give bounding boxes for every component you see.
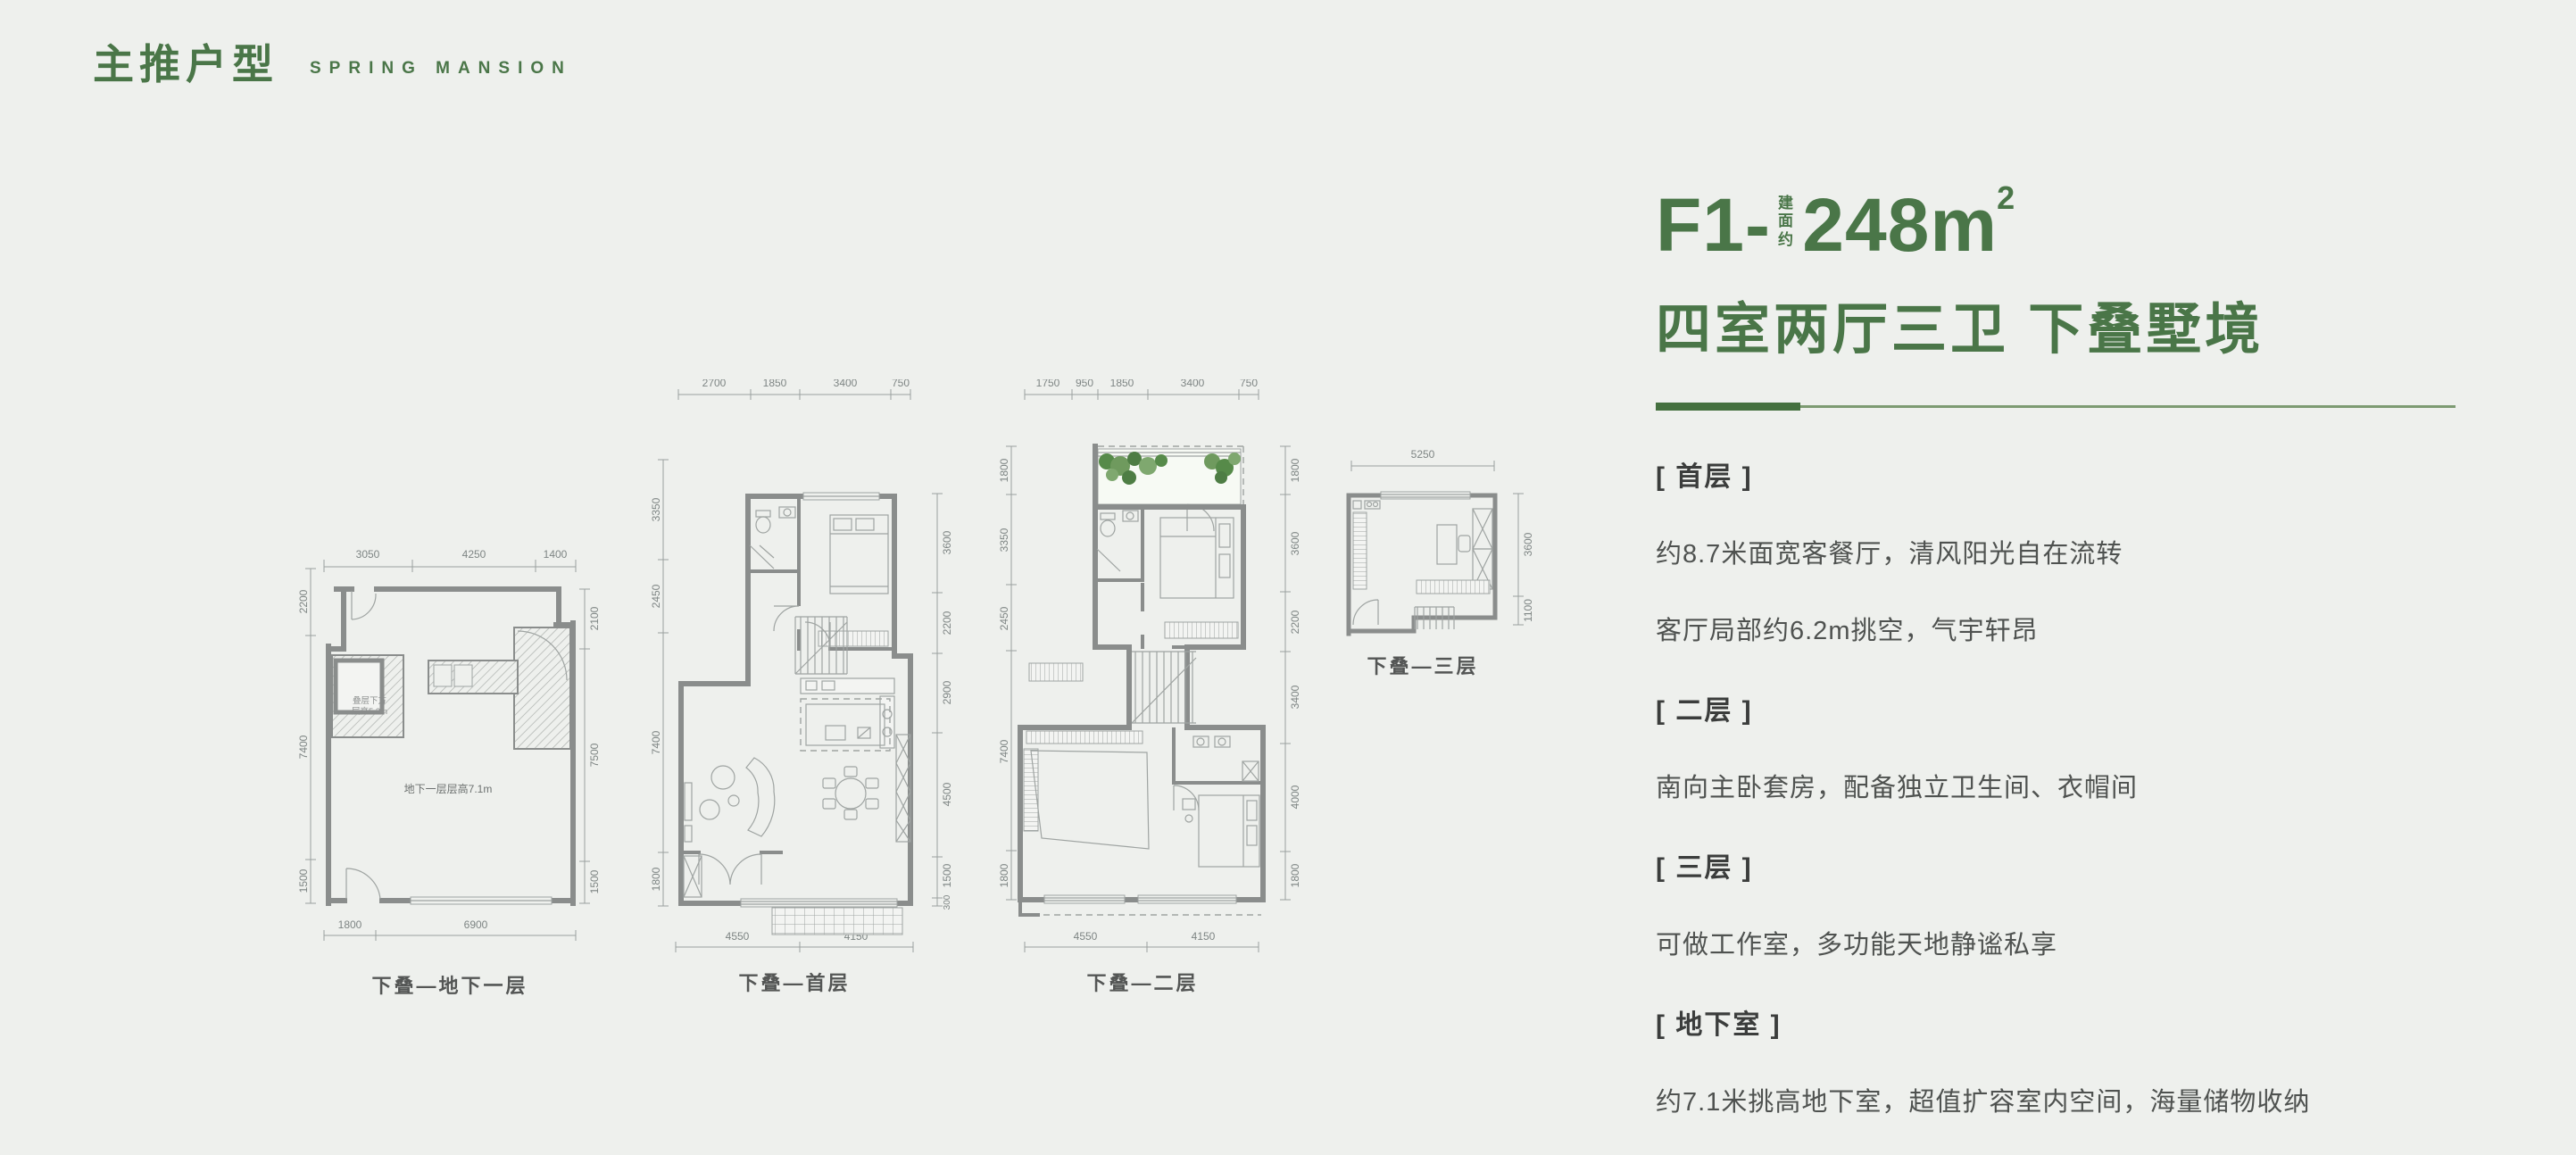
bed-secondary xyxy=(1183,795,1259,867)
svg-text:1750: 1750 xyxy=(1036,379,1060,389)
utility-fixtures xyxy=(1353,501,1380,509)
svg-text:2900: 2900 xyxy=(941,680,953,704)
divider xyxy=(1656,405,2456,408)
walls xyxy=(681,496,910,903)
svg-text:6900: 6900 xyxy=(464,918,488,931)
bed-master xyxy=(1160,518,1234,598)
bed xyxy=(830,515,888,594)
section-text: 客厅局部约6.2m挑空，气宇轩昂 xyxy=(1656,610,2548,647)
svg-text:4150: 4150 xyxy=(1192,930,1216,943)
svg-text:300: 300 xyxy=(943,894,952,910)
svg-text:1500: 1500 xyxy=(297,868,310,893)
hatched-void-areas xyxy=(332,627,570,749)
dim-chain-bottom: 4550 4150 xyxy=(1025,930,1259,952)
svg-text:1100: 1100 xyxy=(1522,599,1534,622)
dim-chain-top: 5250 xyxy=(1351,448,1494,471)
svg-text:2450: 2450 xyxy=(998,606,1010,630)
svg-text:1800: 1800 xyxy=(650,867,662,891)
svg-text:3600: 3600 xyxy=(1522,532,1534,556)
floor-plan-basement-drawing: 3050 4250 1400 2200 7400 1500 2100 7500 … xyxy=(295,546,598,1010)
dim-chain-left: 3350 2450 7400 1800 xyxy=(650,460,669,906)
door-arc xyxy=(1353,600,1378,625)
unit-title: F1- 建面约 248 m2 xyxy=(1656,187,2548,262)
svg-text:3350: 3350 xyxy=(650,497,662,521)
roof-terrace xyxy=(1095,446,1243,531)
floor-plan-third-floor: 5250 3600 1100 xyxy=(1332,446,1546,696)
svg-text:1850: 1850 xyxy=(1110,379,1134,389)
svg-text:3400: 3400 xyxy=(1289,685,1301,709)
unit-code: F1- xyxy=(1656,187,1771,262)
window-north xyxy=(1381,492,1470,499)
svg-text:1800: 1800 xyxy=(338,918,362,931)
page-title: 主推户型 xyxy=(93,32,278,91)
desk xyxy=(1437,525,1470,564)
media-wall xyxy=(685,783,692,842)
area-value: 248 xyxy=(1802,187,1930,262)
svg-text:2700: 2700 xyxy=(702,379,727,389)
dim-chain-top: 3050 4250 1400 xyxy=(324,548,576,572)
section-label-second-floor: [ 二层 ] xyxy=(1656,688,2548,727)
sofa xyxy=(700,758,775,836)
svg-text:1400: 1400 xyxy=(544,548,568,561)
closet xyxy=(1473,509,1492,589)
svg-text:950: 950 xyxy=(1076,379,1093,389)
svg-text:3600: 3600 xyxy=(1289,531,1301,555)
plan-caption-basement: 下叠—地下一层 xyxy=(371,975,528,997)
area-unit: m2 xyxy=(1930,187,2015,262)
section-text: 约7.1米挑高地下室，超值扩容室内空间，海量储物收纳 xyxy=(1656,1081,2548,1118)
svg-text:4000: 4000 xyxy=(1289,785,1301,809)
svg-text:1850: 1850 xyxy=(763,379,787,389)
floor-plan-first-floor-drawing: 2700 1850 3400 750 3350 2450 7400 1800 3… xyxy=(647,379,1004,1004)
unit-info-panel: F1- 建面约 248 m2 四室两厅三卫 下叠墅境 [ 首层 ] 约8.7米面… xyxy=(1656,187,2548,1118)
feature-sections: [ 首层 ] 约8.7米面宽客餐厅，清风阳光自在流转 客厅局部约6.2m挑空，气… xyxy=(1656,454,2548,1118)
svg-text:7500: 7500 xyxy=(588,743,598,767)
section-label-third-floor: [ 三层 ] xyxy=(1656,845,2548,885)
svg-text:2200: 2200 xyxy=(297,589,310,613)
ceiling-height-note: 地下一层层高7.1m xyxy=(404,782,493,795)
area-prefix: 建面约 xyxy=(1778,195,1797,249)
hatch-note-line2: 层高5.3m xyxy=(352,706,387,717)
plan-caption-first-floor: 下叠—首层 xyxy=(738,972,850,994)
svg-text:5250: 5250 xyxy=(1411,448,1435,461)
page: 主推户型 SPRING MANSION F1- 建面约 248 m2 四室两厅三… xyxy=(0,0,2576,1155)
floor-plan-third-floor-drawing: 5250 3600 1100 xyxy=(1332,446,1546,696)
section-text: 约8.7米面宽客餐厅，清风阳光自在流转 xyxy=(1656,533,2548,570)
svg-text:3600: 3600 xyxy=(941,530,953,554)
dim-chain-left: 1800 3350 2450 7400 1800 xyxy=(998,446,1017,900)
svg-text:750: 750 xyxy=(892,379,910,389)
dining-table xyxy=(823,767,878,819)
divider-accent xyxy=(1656,403,1800,411)
svg-text:4550: 4550 xyxy=(726,930,750,943)
windows xyxy=(741,493,897,907)
svg-text:750: 750 xyxy=(1240,379,1258,389)
svg-text:1800: 1800 xyxy=(998,458,1010,482)
svg-text:1500: 1500 xyxy=(941,863,953,887)
deck-grid xyxy=(772,908,902,935)
bathroom-fixtures-upper xyxy=(1097,511,1138,571)
svg-text:1800: 1800 xyxy=(998,863,1010,887)
interior-walls xyxy=(681,496,894,852)
svg-text:4500: 4500 xyxy=(941,782,953,806)
section-label-first-floor: [ 首层 ] xyxy=(1656,454,2548,494)
dim-chain-right: 1800 3600 2200 3400 4000 1800 xyxy=(1280,446,1301,900)
unit-subtitle: 四室两厅三卫 下叠墅境 xyxy=(1656,284,2548,364)
svg-text:1800: 1800 xyxy=(1289,458,1301,482)
svg-text:1500: 1500 xyxy=(588,869,598,893)
svg-text:2200: 2200 xyxy=(941,611,953,635)
void-opening-line xyxy=(1031,751,1149,849)
svg-text:1800: 1800 xyxy=(1289,863,1301,887)
wardrobe-band-top xyxy=(1026,731,1143,744)
shelf-band-bottom xyxy=(1417,580,1490,594)
dim-chain-bottom: 1800 6900 xyxy=(324,918,576,941)
svg-text:2450: 2450 xyxy=(650,584,662,608)
windows-south xyxy=(1044,895,1236,903)
closet-band xyxy=(1029,663,1083,681)
svg-text:2200: 2200 xyxy=(1289,610,1301,634)
hatch-note-line1: 叠层下方 xyxy=(353,695,386,706)
dim-chain-top: 1750 950 1850 3400 750 xyxy=(1025,379,1259,400)
svg-text:3050: 3050 xyxy=(356,548,380,561)
plan-caption-third-floor: 下叠—三层 xyxy=(1367,655,1478,677)
entry-doors xyxy=(684,854,761,897)
floor-plan-basement: 3050 4250 1400 2200 7400 1500 2100 7500 … xyxy=(295,546,598,1010)
plan-caption-second-floor: 下叠—二层 xyxy=(1086,972,1198,994)
section-text: 可做工作室，多功能天地静谧私享 xyxy=(1656,924,2548,961)
svg-text:4550: 4550 xyxy=(1074,930,1098,943)
svg-text:3400: 3400 xyxy=(834,379,858,389)
section-text: 南向主卧套房，配备独立卫生间、衣帽间 xyxy=(1656,767,2548,804)
shelf-band-left xyxy=(1353,512,1367,589)
kitchen xyxy=(801,678,894,751)
svg-text:7400: 7400 xyxy=(297,735,310,759)
svg-text:4250: 4250 xyxy=(462,548,486,561)
dim-chain-left: 2200 7400 1500 xyxy=(297,569,316,903)
dim-chain-top: 2700 1850 3400 750 xyxy=(678,379,910,400)
svg-text:7400: 7400 xyxy=(998,739,1010,763)
bathroom-fixtures xyxy=(750,507,795,569)
svg-text:2100: 2100 xyxy=(588,606,598,630)
wardrobe-upper xyxy=(1165,622,1238,638)
svg-text:7400: 7400 xyxy=(650,730,662,754)
brand-name-en: SPRING MANSION xyxy=(310,59,572,79)
svg-text:3350: 3350 xyxy=(998,528,1010,552)
svg-text:3400: 3400 xyxy=(1181,379,1205,389)
dim-chain-right: 3600 2200 2900 4500 1500 300 xyxy=(932,494,953,910)
dim-chain-right: 2100 7500 1500 xyxy=(579,589,598,903)
dim-chain-right: 3600 1100 xyxy=(1513,494,1534,625)
floor-plan-first-floor: 2700 1850 3400 750 3350 2450 7400 1800 3… xyxy=(647,379,1004,1004)
floor-plan-second-floor: 1750 950 1850 3400 750 1800 3350 2450 74… xyxy=(995,379,1352,1004)
section-label-basement: [ 地下室 ] xyxy=(1656,1002,2548,1042)
bathroom-fixtures-lower xyxy=(1193,736,1259,781)
floor-plan-second-floor-drawing: 1750 950 1850 3400 750 1800 3350 2450 74… xyxy=(995,379,1352,1004)
